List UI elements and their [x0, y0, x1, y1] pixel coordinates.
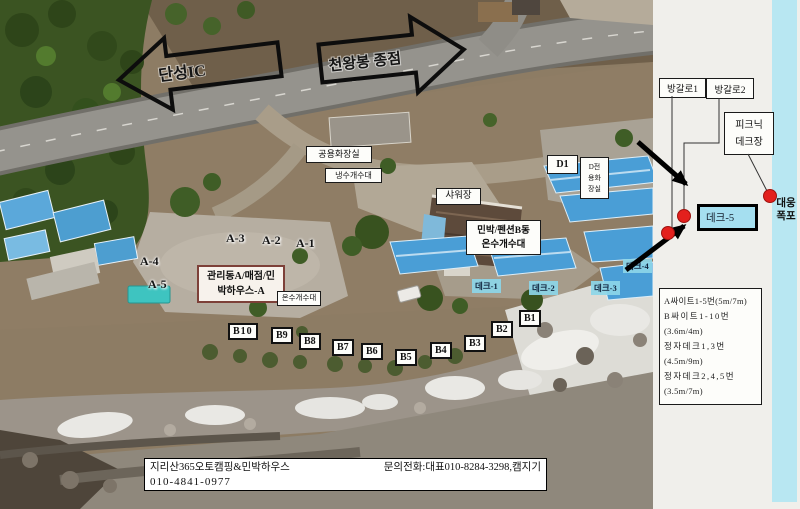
pension-b-line2: 온수개수대 — [482, 238, 526, 252]
shower-text: 샤워장 — [445, 191, 471, 202]
d-restroom-l3: 장실 — [588, 184, 601, 195]
waterfall-strip — [772, 0, 797, 502]
office-line1: 관리동A/매점/민 — [207, 269, 275, 284]
site-a5-label: A-5 — [148, 277, 167, 292]
office-line2: 박하우스-A — [217, 284, 264, 299]
site-b10-label: B10 — [228, 323, 258, 340]
site-b6-label: B6 — [361, 343, 383, 360]
pension-b-label: 민박/펜션B동 온수개수대 — [466, 220, 541, 255]
public-restroom-label: 공용화장실 — [306, 146, 372, 163]
waterfall-line1: 대웅 — [774, 197, 798, 210]
footer-contact: 문의전화:대표010-8284-3298,캠지기 — [384, 460, 541, 475]
footer-info-box: 지리산365오토캠핑&민박하우스 문의전화:대표010-8284-3298,캠지… — [144, 458, 547, 491]
shower-label: 샤워장 — [436, 188, 481, 205]
picnic-line2: 데크장 — [735, 134, 763, 151]
site-b4-label: B4 — [430, 342, 452, 359]
footer-phone: 010-4841-0977 — [150, 475, 541, 490]
site-b2-label: B2 — [491, 321, 513, 338]
site-a2-label: A-2 — [262, 233, 281, 248]
d-restroom-label: D전 용화 장실 — [580, 157, 609, 199]
legend-line-2: B싸이트1-10번 — [664, 309, 758, 324]
site-b8-label: B8 — [299, 333, 321, 350]
site-b3-label: B3 — [464, 335, 486, 352]
deck5-text: 데크-5 — [706, 210, 734, 225]
picnic-deck-label: 피크닉 데크장 — [724, 112, 774, 155]
deck3-label: 데크-3 — [591, 281, 620, 295]
cold-water-sink-label: 냉수개수대 — [325, 168, 382, 183]
hot-sink-text: 온수개수대 — [282, 294, 317, 303]
waterfall-label: 대웅 폭포 — [774, 197, 798, 223]
site-b7-label: B7 — [332, 339, 354, 356]
cold-sink-text: 냉수개수대 — [335, 171, 372, 180]
deck5-highlight-box: 데크-5 — [697, 204, 758, 231]
bungalow2-label: 방갈로2 — [706, 78, 754, 99]
aerial-photo: 단성IC 천왕봉 종점 — [0, 0, 653, 509]
legend-line-5: (4.5m/9m) — [664, 354, 758, 369]
picnic-line1: 피크닉 — [735, 117, 763, 134]
campground-map-screenshot: 단성IC 천왕봉 종점 방갈로1 방갈로2 피크닉 데크장 데크-5 대웅 폭포… — [0, 0, 800, 509]
bungalow1-label: 방갈로1 — [659, 78, 706, 98]
legend-line-6: 정자데크2,4,5번 — [664, 369, 758, 384]
site-d1-label: D1 — [547, 155, 578, 174]
deck1-label: 데크-1 — [472, 279, 501, 293]
d1-text: D1 — [556, 159, 568, 171]
bungalow1-text: 방갈로1 — [667, 81, 698, 95]
legend-line-7: (3.5m/7m) — [664, 384, 758, 399]
legend-line-3: (3.6m/4m) — [664, 324, 758, 339]
waterfall-line2: 폭포 — [774, 210, 798, 223]
site-a4-label: A-4 — [140, 254, 159, 269]
deck2-label: 데크-2 — [529, 281, 558, 295]
site-size-legend: A싸이트1-5번(5m/7m) B싸이트1-10번 (3.6m/4m) 정자데크… — [659, 288, 762, 405]
d-restroom-l1: D전 — [589, 162, 601, 173]
site-b1-label: B1 — [519, 310, 541, 327]
pension-b-line1: 민박/펜션B동 — [477, 224, 530, 238]
legend-line-1: A싸이트1-5번(5m/7m) — [664, 294, 758, 309]
bungalow2-text: 방갈로2 — [715, 82, 746, 96]
site-b5-label: B5 — [395, 349, 417, 366]
deck4-label: 데크-4 — [623, 259, 652, 273]
site-b9-label: B9 — [271, 327, 293, 344]
hot-water-sink-label: 온수개수대 — [277, 291, 321, 306]
d-restroom-l2: 용화 — [588, 173, 601, 184]
public-restroom-text: 공용화장실 — [318, 149, 359, 159]
legend-line-4: 정자데크1,3번 — [664, 339, 758, 354]
office-store-label: 관리동A/매점/민 박하우스-A — [197, 265, 285, 303]
site-a1-label: A-1 — [296, 236, 315, 251]
footer-site-name: 지리산365오토캠핑&민박하우스 — [150, 460, 290, 475]
site-a3-label: A-3 — [226, 231, 245, 246]
